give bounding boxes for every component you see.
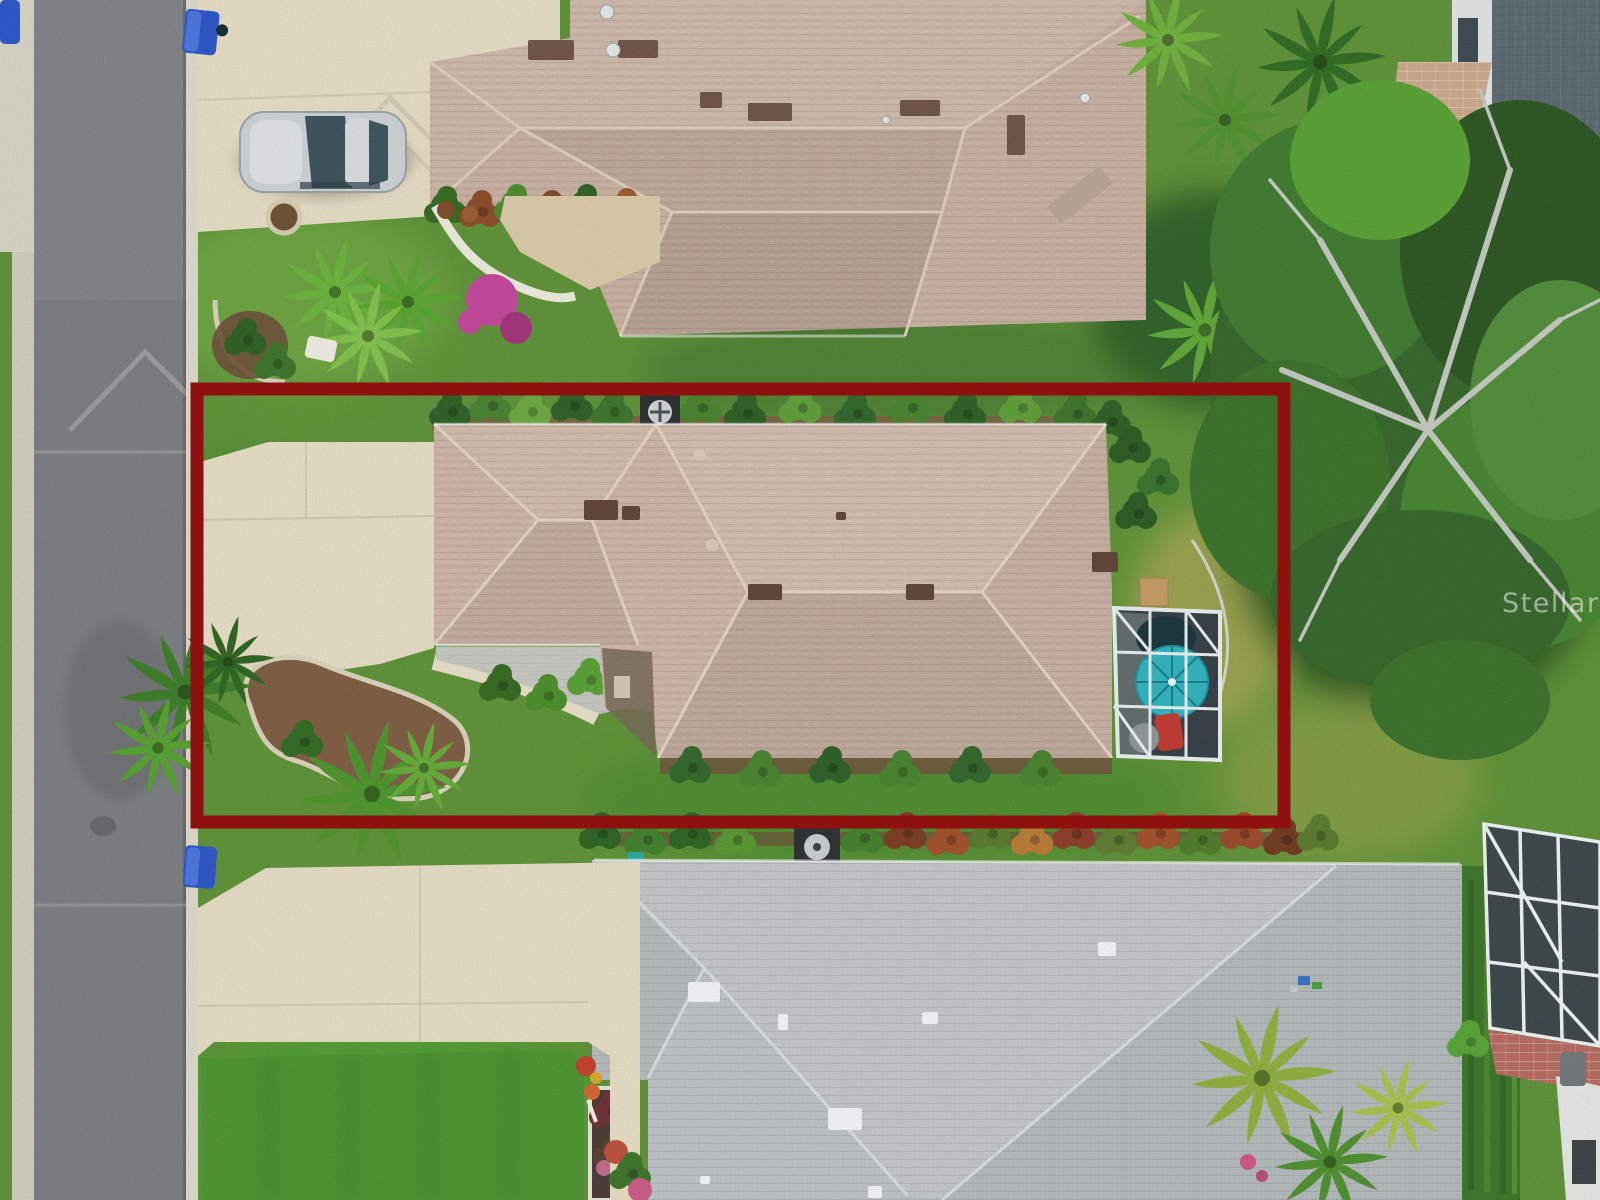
photo-grain-light (0, 0, 1600, 1200)
aerial-photo-canvas: Stellar MLS (0, 0, 1600, 1200)
watermark: Stellar MLS (1502, 588, 1600, 619)
aerial-photo: Stellar MLS (0, 0, 1600, 1200)
